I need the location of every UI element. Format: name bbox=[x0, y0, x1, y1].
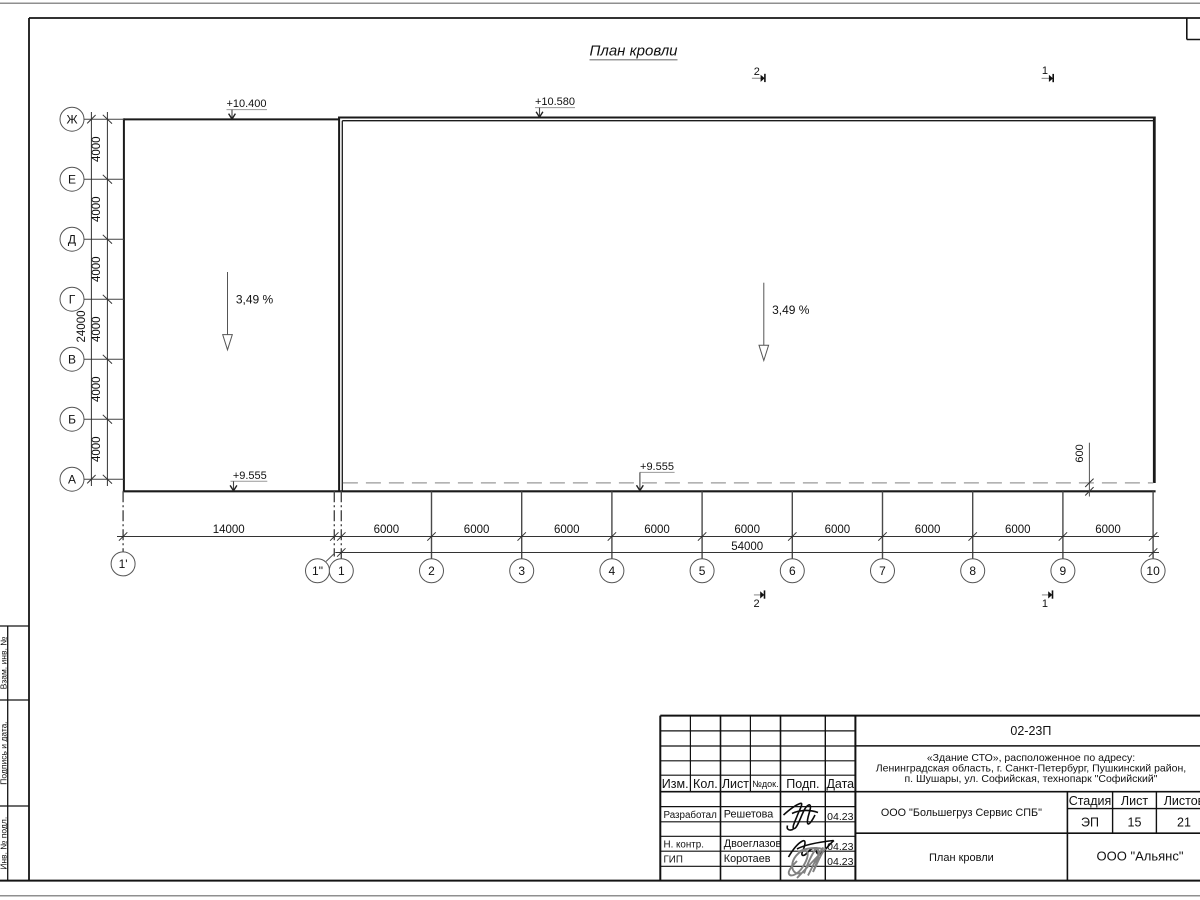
svg-text:4000: 4000 bbox=[91, 196, 103, 222]
svg-text:14000: 14000 bbox=[213, 524, 245, 536]
svg-text:Кол.: Кол. bbox=[693, 777, 718, 791]
svg-text:6000: 6000 bbox=[915, 524, 941, 536]
svg-text:Е: Е bbox=[68, 172, 76, 186]
svg-text:п. Шушары, ул. Софийская, техн: п. Шушары, ул. Софийская, технопарк "Соф… bbox=[905, 773, 1158, 785]
svg-text:6000: 6000 bbox=[1005, 524, 1031, 536]
svg-text:Г: Г bbox=[69, 292, 76, 306]
svg-text:1: 1 bbox=[1042, 598, 1048, 610]
svg-text:Разработал: Разработал bbox=[664, 810, 718, 821]
svg-text:6000: 6000 bbox=[374, 524, 400, 536]
svg-text:02-23П: 02-23П bbox=[1010, 724, 1051, 738]
svg-text:4000: 4000 bbox=[91, 316, 103, 342]
svg-text:Дата: Дата bbox=[826, 777, 854, 791]
svg-text:4: 4 bbox=[609, 564, 616, 578]
svg-text:Листов: Листов bbox=[1164, 794, 1200, 808]
svg-text:Стадия: Стадия bbox=[1069, 794, 1112, 808]
svg-text:Коротаев: Коротаев bbox=[724, 853, 771, 865]
svg-text:7: 7 bbox=[879, 564, 886, 578]
svg-text:24000: 24000 bbox=[76, 311, 88, 343]
svg-text:В: В bbox=[68, 352, 76, 366]
svg-text:3: 3 bbox=[518, 564, 525, 578]
svg-text:6: 6 bbox=[789, 564, 796, 578]
svg-text:4000: 4000 bbox=[91, 136, 103, 162]
svg-text:План кровли: План кровли bbox=[590, 43, 679, 60]
svg-text:ООО "Альянс": ООО "Альянс" bbox=[1097, 849, 1184, 864]
svg-text:План кровли: План кровли bbox=[929, 852, 994, 864]
svg-text:№док.: №док. bbox=[752, 779, 778, 789]
svg-text:3,49 %: 3,49 % bbox=[772, 303, 810, 317]
svg-text:Ж: Ж bbox=[66, 112, 77, 126]
svg-text:Д: Д bbox=[68, 232, 76, 246]
svg-text:ООО "Большегруз Сервис СПБ": ООО "Большегруз Сервис СПБ" bbox=[881, 807, 1042, 819]
svg-text:Б: Б bbox=[68, 412, 76, 426]
svg-text:600: 600 bbox=[1074, 444, 1086, 462]
svg-text:8: 8 bbox=[969, 564, 976, 578]
svg-text:21: 21 bbox=[1177, 816, 1191, 830]
svg-text:Взам. инв. №: Взам. инв. № bbox=[0, 637, 9, 690]
svg-text:4000: 4000 bbox=[91, 376, 103, 402]
svg-text:6000: 6000 bbox=[644, 524, 670, 536]
svg-text:4000: 4000 bbox=[91, 256, 103, 282]
svg-text:2: 2 bbox=[428, 564, 435, 578]
svg-text:Инв. № подл.: Инв. № подл. bbox=[0, 817, 9, 870]
svg-text:Подп.: Подп. bbox=[786, 777, 819, 791]
svg-text:Двоеглазов: Двоеглазов bbox=[724, 838, 782, 850]
svg-text:Решетова: Решетова bbox=[724, 808, 774, 820]
svg-text:4000: 4000 bbox=[91, 436, 103, 462]
svg-text:1': 1' bbox=[119, 557, 128, 571]
svg-text:54000: 54000 bbox=[731, 541, 763, 553]
svg-text:+10.580: +10.580 bbox=[535, 96, 575, 108]
svg-text:1: 1 bbox=[1042, 65, 1048, 77]
svg-text:5: 5 bbox=[699, 564, 706, 578]
svg-text:ГИП: ГИП bbox=[664, 854, 683, 865]
svg-text:Лист: Лист bbox=[1121, 794, 1148, 808]
svg-text:+9.555: +9.555 bbox=[233, 470, 267, 482]
svg-text:+10.400: +10.400 bbox=[226, 98, 266, 110]
svg-text:15: 15 bbox=[1128, 816, 1142, 830]
svg-text:Подпись и дата.: Подпись и дата. bbox=[0, 721, 9, 785]
svg-text:6000: 6000 bbox=[825, 524, 851, 536]
svg-text:1": 1" bbox=[312, 564, 323, 578]
svg-text:6000: 6000 bbox=[1095, 524, 1121, 536]
svg-text:04.23: 04.23 bbox=[827, 856, 853, 868]
svg-text:10: 10 bbox=[1146, 564, 1160, 578]
svg-text:Изм.: Изм. bbox=[662, 777, 689, 791]
svg-text:04.23: 04.23 bbox=[827, 811, 853, 823]
svg-text:3,49 %: 3,49 % bbox=[236, 292, 274, 306]
svg-text:Лист: Лист bbox=[722, 777, 749, 791]
svg-text:1: 1 bbox=[338, 564, 345, 578]
svg-text:А: А bbox=[68, 472, 76, 486]
svg-text:9: 9 bbox=[1060, 564, 1067, 578]
svg-text:2: 2 bbox=[754, 66, 760, 78]
svg-text:6000: 6000 bbox=[554, 524, 580, 536]
svg-text:2: 2 bbox=[754, 598, 760, 610]
svg-text:6000: 6000 bbox=[734, 524, 760, 536]
svg-text:ЭП: ЭП bbox=[1081, 816, 1099, 830]
svg-text:Н. контр.: Н. контр. bbox=[664, 839, 704, 850]
svg-text:6000: 6000 bbox=[464, 524, 490, 536]
svg-text:+9.555: +9.555 bbox=[640, 461, 674, 473]
